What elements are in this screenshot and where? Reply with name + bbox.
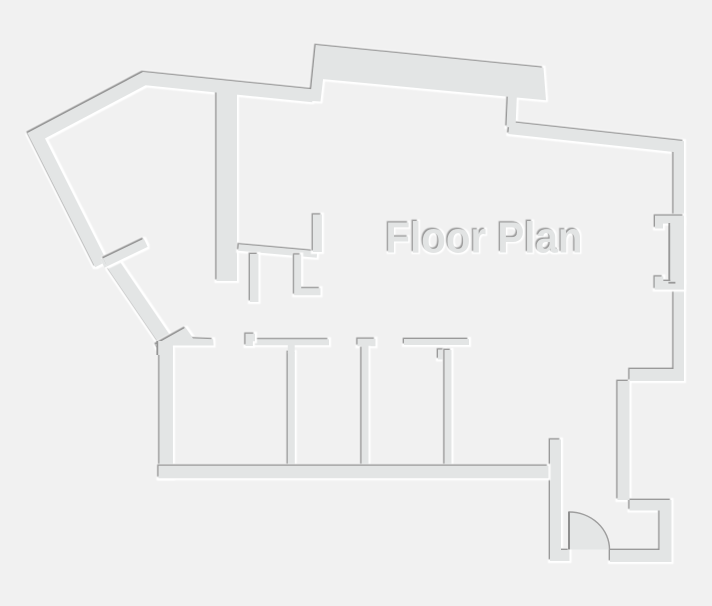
svg-text:Floor Plan: Floor Plan (386, 215, 583, 263)
